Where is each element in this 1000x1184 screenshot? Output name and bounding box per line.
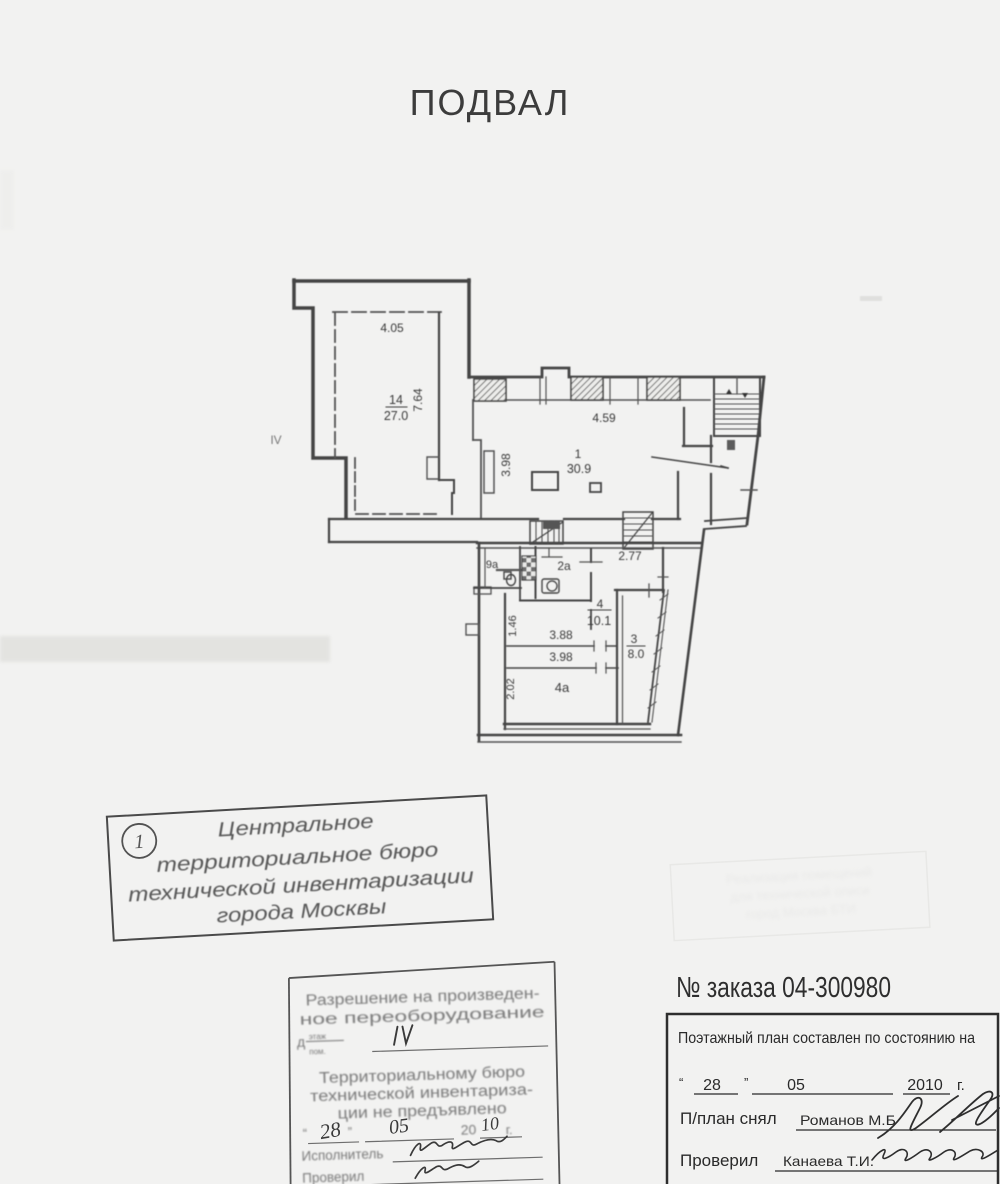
svg-text:05: 05 xyxy=(787,1077,805,1094)
svg-text:“: “ xyxy=(303,1126,308,1141)
svg-text:9а: 9а xyxy=(486,559,499,571)
svg-text:Проверил: Проверил xyxy=(680,1151,758,1170)
svg-text:Проверил: Проверил xyxy=(302,1169,365,1184)
svg-text:30.9: 30.9 xyxy=(567,462,591,476)
svg-text:2.77: 2.77 xyxy=(618,549,642,563)
svg-text:Романов М.Б: Романов М.Б xyxy=(800,1112,896,1128)
svg-text:28: 28 xyxy=(703,1077,721,1094)
svg-text:27.0: 27.0 xyxy=(384,409,408,423)
svg-text:Поэтажный план составлен по со: Поэтажный план составлен по состоянию на xyxy=(678,1030,975,1047)
svg-text:пом.: пом. xyxy=(309,1047,326,1057)
svg-text:г.: г. xyxy=(506,1122,513,1137)
svg-text:3.98: 3.98 xyxy=(499,453,513,477)
svg-text:”: ” xyxy=(744,1075,748,1090)
svg-text:П/план снял: П/план снял xyxy=(680,1109,777,1128)
svg-text:д: д xyxy=(297,1034,306,1050)
svg-text:4: 4 xyxy=(597,597,604,611)
svg-text:3: 3 xyxy=(631,632,638,646)
svg-text:1: 1 xyxy=(134,831,145,854)
svg-text:20: 20 xyxy=(460,1121,476,1137)
svg-text:2010: 2010 xyxy=(907,1077,943,1094)
svg-text:2.02: 2.02 xyxy=(505,678,517,699)
svg-text:Исполнитель: Исполнитель xyxy=(301,1146,383,1164)
svg-text:2а: 2а xyxy=(557,559,571,573)
svg-text:IV: IV xyxy=(270,433,281,447)
svg-text:ПОДВАЛ: ПОДВАЛ xyxy=(410,82,571,123)
svg-text:10.1: 10.1 xyxy=(587,614,611,628)
svg-text:3.98: 3.98 xyxy=(549,650,573,664)
svg-text:10: 10 xyxy=(480,1113,501,1135)
svg-text:14: 14 xyxy=(389,393,403,407)
svg-text:г.: г. xyxy=(957,1077,965,1094)
svg-text:”: ” xyxy=(348,1124,353,1139)
svg-text:№ заказа 04-300980: № заказа 04-300980 xyxy=(676,972,891,1004)
svg-text:этаж: этаж xyxy=(309,1032,327,1042)
svg-text:3.88: 3.88 xyxy=(549,628,573,642)
svg-text:05: 05 xyxy=(388,1114,411,1139)
svg-text:Канаева Т.И.: Канаева Т.И. xyxy=(783,1153,874,1169)
svg-text:1: 1 xyxy=(575,447,582,461)
svg-text:4.05: 4.05 xyxy=(380,321,404,335)
svg-text:1.46: 1.46 xyxy=(507,615,519,636)
svg-text:7.64: 7.64 xyxy=(411,388,425,412)
svg-text:4а: 4а xyxy=(555,680,570,695)
svg-text:4.59: 4.59 xyxy=(592,411,616,425)
svg-text:8.0: 8.0 xyxy=(628,647,645,661)
svg-text:“: “ xyxy=(679,1075,683,1090)
